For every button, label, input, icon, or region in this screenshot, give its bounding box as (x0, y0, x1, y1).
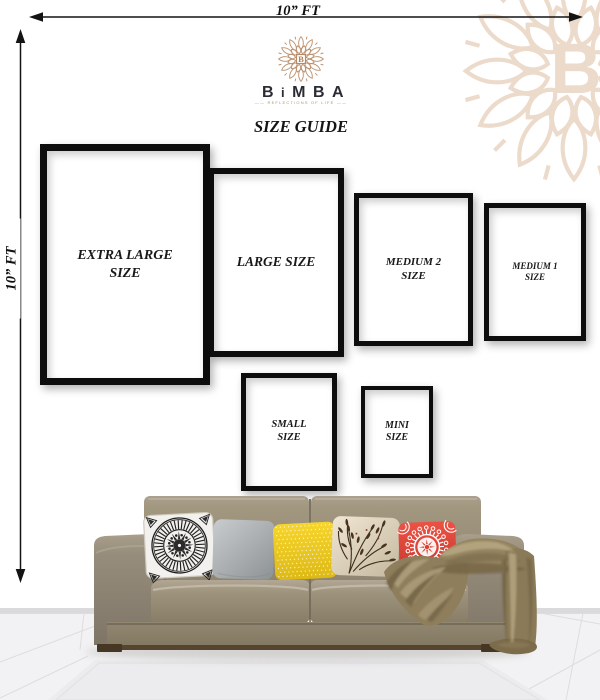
svg-text:B: B (298, 54, 304, 64)
svg-text:B: B (550, 30, 600, 109)
